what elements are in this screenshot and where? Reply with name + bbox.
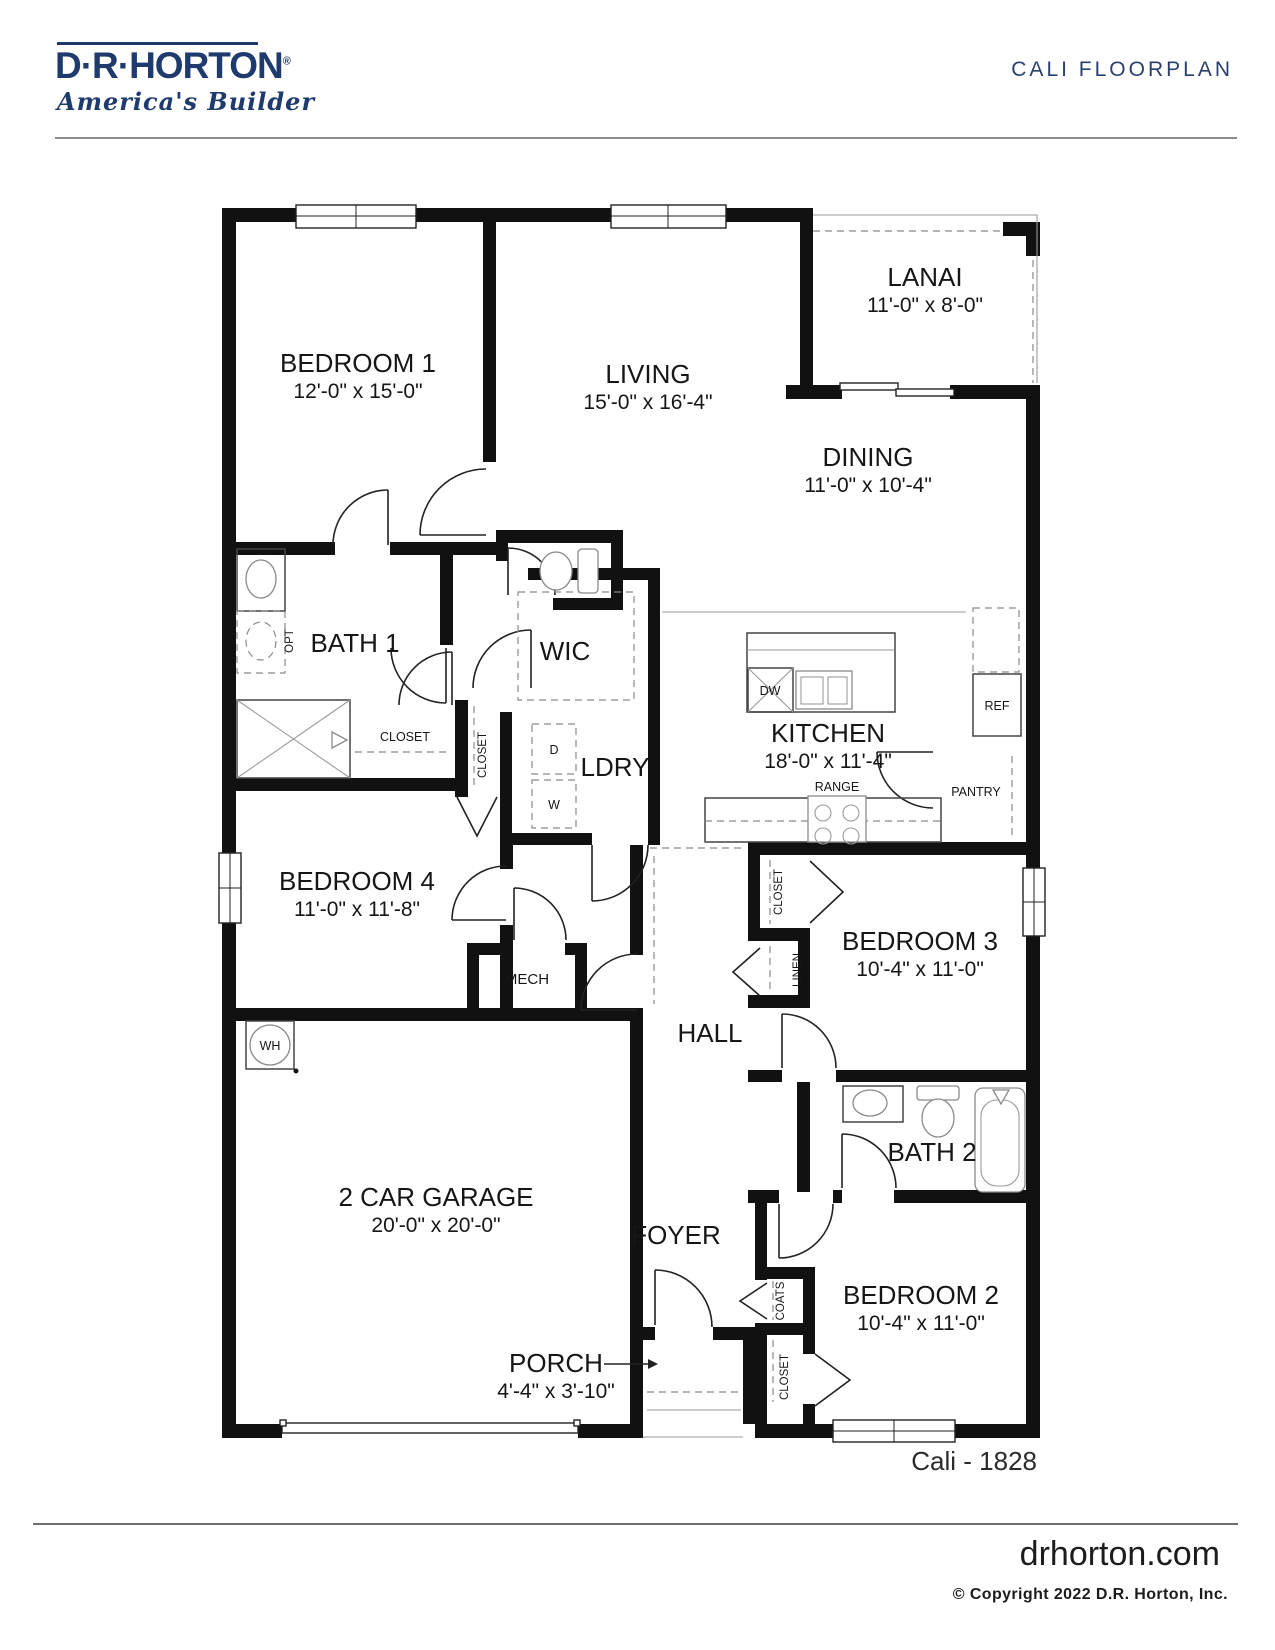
- hall-closet-label: CLOSET: [477, 732, 489, 778]
- coats-bifold-door: [740, 1283, 767, 1319]
- lanai-label: LANAI: [887, 262, 962, 292]
- footer-copyright: © Copyright 2022 D.R. Horton, Inc.: [953, 1586, 1228, 1604]
- bath1-label: BATH 1: [310, 628, 399, 658]
- kitchen-dims: 18'-0" x 11'-4": [764, 750, 892, 773]
- kitchen-label: KITCHEN: [771, 718, 885, 748]
- hall-label: HALL: [677, 1018, 742, 1048]
- garage-label: 2 CAR GARAGE: [338, 1182, 533, 1212]
- bedroom3-dims: 10'-4" x 11'-0": [856, 958, 984, 981]
- living-dims: 15'-0" x 16'-4": [583, 391, 712, 414]
- plan-code: Cali - 1828: [911, 1446, 1037, 1476]
- bath2-sink: [843, 1086, 903, 1122]
- bath1-optional-sink: [237, 611, 285, 673]
- bedroom2-label: BEDROOM 2: [843, 1280, 999, 1310]
- bath1-shower: [237, 700, 350, 778]
- bedroom1-label: BEDROOM 1: [280, 348, 436, 378]
- garage-door: [280, 1420, 580, 1433]
- bedroom3-label: BEDROOM 3: [842, 926, 998, 956]
- mech-door: [514, 888, 566, 940]
- living-window: [611, 205, 726, 228]
- bedroom1-window: [296, 205, 416, 228]
- coats-label: COATS: [775, 1281, 787, 1320]
- range-label: RANGE: [815, 780, 859, 794]
- bedroom3-door: [782, 1014, 836, 1068]
- bath1-sink: [237, 549, 285, 611]
- laundry-label: LDRY: [581, 752, 650, 782]
- hall-closet-bifold-door: [457, 797, 497, 836]
- garage-entry-door: [581, 954, 637, 1010]
- bath1-closet-label: CLOSET: [380, 730, 430, 744]
- bedroom1-dims: 12'-0" x 15'-0": [293, 380, 422, 403]
- bath2-tub: [975, 1088, 1025, 1192]
- range: [705, 796, 941, 844]
- bedroom2-door: [779, 1204, 833, 1258]
- refrigerator-label: REF: [985, 699, 1010, 713]
- bedroom3-window: [1023, 868, 1045, 936]
- footer-divider: [33, 1523, 1238, 1525]
- bedroom2-window: [833, 1420, 955, 1442]
- front-door: [655, 1270, 712, 1327]
- optional-sink-label: OPT: [284, 629, 296, 653]
- bath1-closet-door: [399, 652, 452, 705]
- mech-label: MECH: [505, 971, 549, 988]
- dishwasher-label: DW: [760, 684, 781, 698]
- bedroom4-dims: 11'-0" x 11'-8": [294, 898, 420, 921]
- porch-dims: 4'-4" x 3'-10": [497, 1380, 614, 1403]
- footer-website: drhorton.com: [1020, 1535, 1220, 1574]
- porch-label: PORCH: [509, 1348, 603, 1378]
- bedroom4-door: [452, 866, 506, 920]
- bedroom4-label: BEDROOM 4: [279, 866, 435, 896]
- dryer-label: D: [549, 743, 558, 757]
- bedroom3-closet-bifold-door: [810, 861, 843, 923]
- wic-door: [473, 630, 531, 688]
- page: D·R·HORTON® America's Builder CALI FLOOR…: [0, 0, 1275, 1650]
- bath2-label: BATH 2: [887, 1137, 976, 1167]
- bedroom3-closet-label: CLOSET: [773, 869, 785, 915]
- kitchen-island: [747, 633, 895, 712]
- dining-dims: 11'-0" x 10'-4": [804, 474, 932, 497]
- bedroom2-closet-label: CLOSET: [779, 1354, 791, 1400]
- room-labels: BEDROOM 1 12'-0" x 15'-0" LIVING 15'-0" …: [279, 262, 999, 1403]
- lanai-dims: 11'-0" x 8'-0": [867, 294, 983, 317]
- linen-label: LINEN: [792, 953, 804, 987]
- foyer-label: FOYER: [631, 1220, 721, 1250]
- garage-dims: 20'-0" x 20'-0": [371, 1214, 500, 1237]
- bedroom1-door: [420, 469, 486, 535]
- refrigerator: [973, 608, 1021, 736]
- washer-label: W: [548, 798, 560, 812]
- bedroom2-dims: 10'-4" x 11'-0": [857, 1312, 985, 1335]
- pantry-label: PANTRY: [951, 785, 1001, 799]
- bath2-toilet: [917, 1086, 959, 1137]
- linen-bifold-door: [733, 948, 760, 996]
- water-heater-label: WH: [260, 1039, 281, 1053]
- bedroom4-window: [219, 853, 241, 923]
- wic-label: WIC: [540, 636, 591, 666]
- living-label: LIVING: [605, 359, 690, 389]
- bath1-toilet: [540, 549, 598, 593]
- bedroom2-closet-bifold-door: [815, 1354, 850, 1406]
- dining-label: DINING: [823, 442, 914, 472]
- lanai-sliding-door: [840, 383, 954, 396]
- bath1-bedroom1-door: [333, 490, 388, 545]
- floorplan-drawing: BEDROOM 1 12'-0" x 15'-0" LIVING 15'-0" …: [0, 0, 1275, 1650]
